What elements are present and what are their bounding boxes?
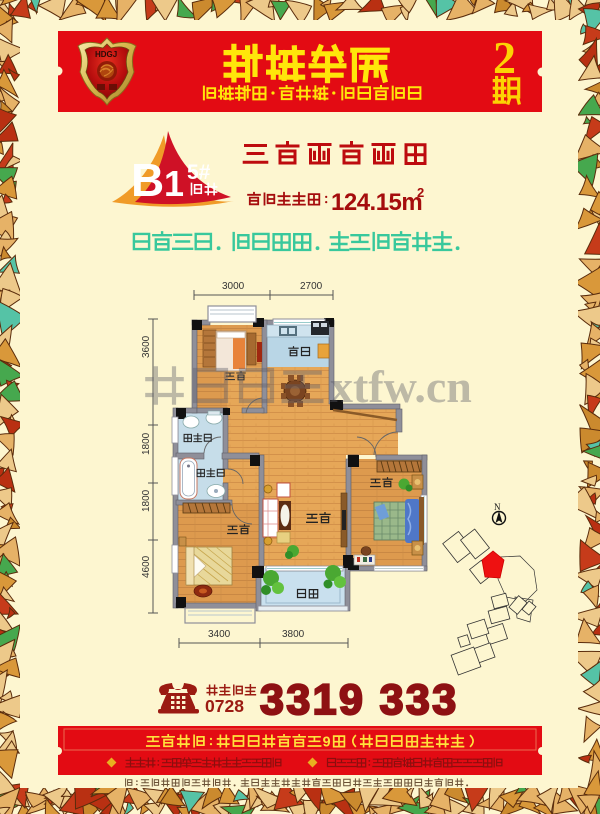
svg-text:B: B — [131, 154, 164, 206]
svg-text:3400: 3400 — [208, 629, 231, 640]
svg-text:9: 9 — [323, 734, 331, 750]
svg-text:2700: 2700 — [300, 281, 323, 292]
svg-text:5#: 5# — [187, 161, 211, 184]
svg-text:2: 2 — [493, 32, 516, 83]
svg-text:0728: 0728 — [205, 696, 244, 716]
svg-text:2: 2 — [417, 185, 424, 200]
svg-text:1800: 1800 — [141, 432, 152, 455]
svg-text:3800: 3800 — [282, 629, 305, 640]
svg-text:xtfw.cn: xtfw.cn — [330, 361, 472, 412]
svg-text:124.15m: 124.15m — [331, 189, 422, 216]
svg-text:3000: 3000 — [222, 281, 245, 292]
svg-text:N: N — [494, 502, 501, 512]
svg-text:1800: 1800 — [141, 489, 152, 512]
svg-text:1: 1 — [164, 163, 184, 204]
svg-text:3319 333: 3319 333 — [260, 676, 459, 724]
svg-text:3600: 3600 — [141, 335, 152, 358]
svg-text:4600: 4600 — [141, 555, 152, 578]
svg-text:HDGJ: HDGJ — [95, 50, 117, 59]
